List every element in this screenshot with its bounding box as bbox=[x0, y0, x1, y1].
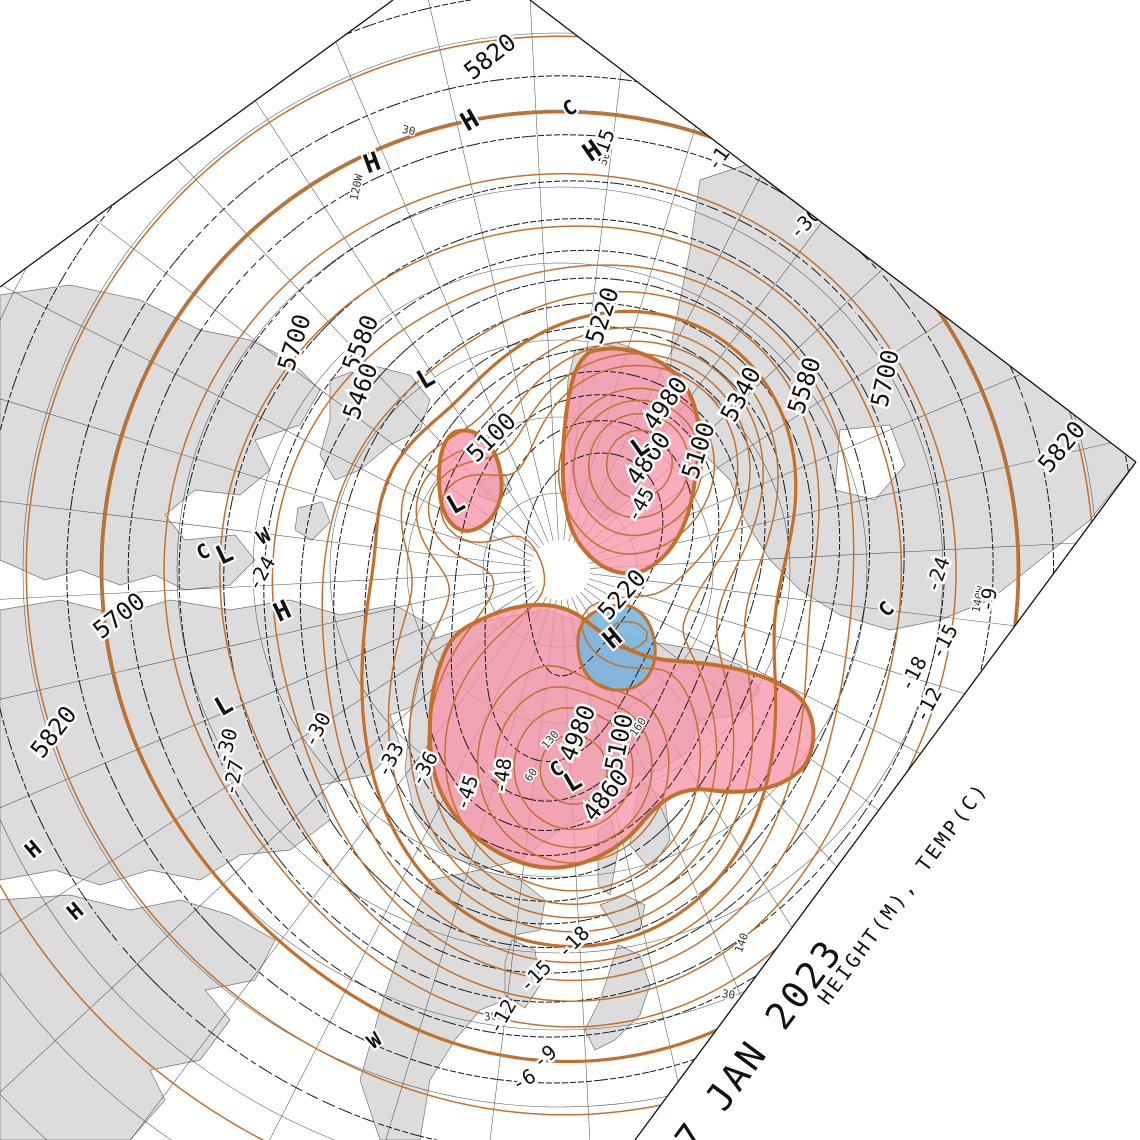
weather-map: 30303030140W120W1301601406050 5820582058… bbox=[0, 0, 1140, 1140]
temp-contour-label: -48 bbox=[488, 756, 517, 795]
temp-contour-label: -9 bbox=[974, 586, 1002, 614]
grid-degree-label: 30 bbox=[721, 987, 736, 1002]
grid-degree-label: 30 bbox=[401, 123, 417, 138]
weather-map-page: 30303030140W120W1301601406050 5820582058… bbox=[0, 0, 1140, 1140]
